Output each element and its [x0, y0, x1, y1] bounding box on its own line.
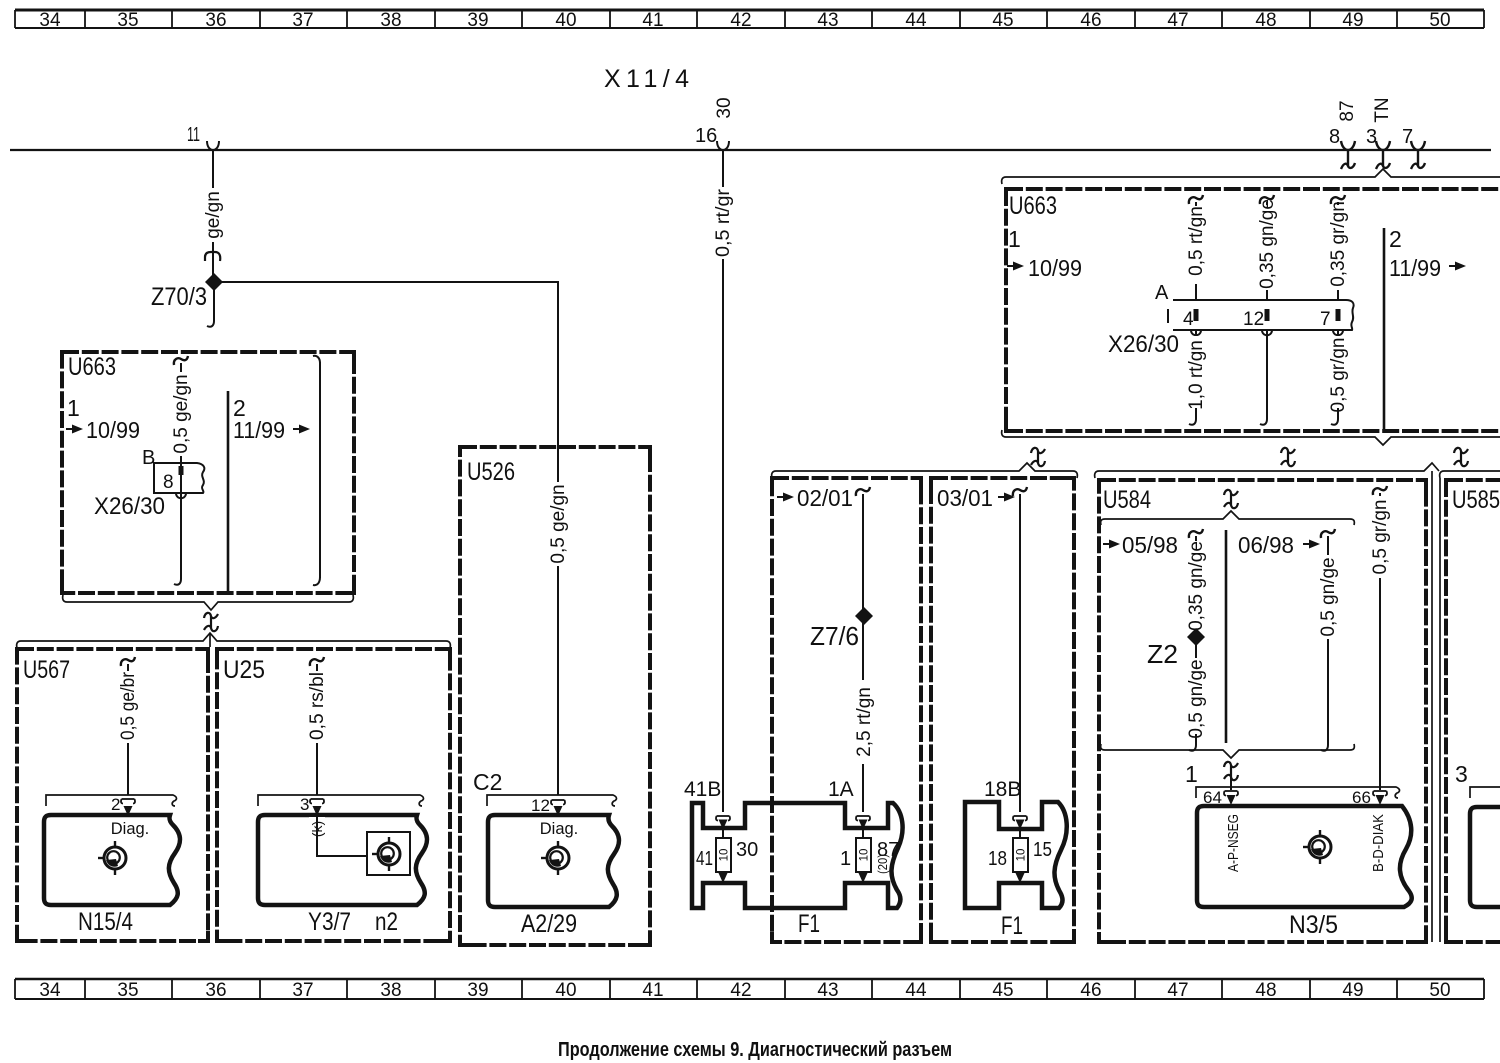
svg-text:11: 11	[187, 124, 200, 146]
svg-text:43: 43	[817, 980, 838, 1001]
svg-text:48: 48	[1255, 10, 1276, 31]
svg-text:B-D-DIAK: B-D-DIAK	[1370, 814, 1387, 872]
svg-text:1,0 rt/gn: 1,0 rt/gn	[1186, 340, 1207, 410]
svg-text:U25: U25	[223, 656, 265, 684]
svg-text:42: 42	[730, 10, 751, 31]
svg-text:47: 47	[1167, 10, 1188, 31]
svg-text:U584: U584	[1103, 486, 1151, 514]
svg-text:37: 37	[292, 980, 313, 1001]
svg-text:36: 36	[205, 980, 226, 1001]
svg-text:10/99: 10/99	[1028, 255, 1082, 281]
svg-text:0,5 ge/gn: 0,5 ge/gn	[171, 374, 192, 453]
svg-text:10/99: 10/99	[86, 417, 140, 443]
svg-text:05/98: 05/98	[1122, 532, 1178, 558]
svg-text:1A: 1A	[828, 778, 854, 801]
svg-text:X26/30: X26/30	[1108, 331, 1179, 358]
svg-text:7: 7	[1320, 309, 1331, 330]
svg-text:N3/5: N3/5	[1289, 911, 1338, 939]
svg-text:0,5 gn/ge: 0,5 gn/ge	[1186, 659, 1207, 738]
svg-text:11/99: 11/99	[233, 417, 285, 443]
svg-text:30: 30	[714, 97, 735, 118]
svg-text:2,5 rt/gn: 2,5 rt/gn	[854, 687, 875, 757]
svg-text:45: 45	[992, 10, 1013, 31]
svg-text:N15/4: N15/4	[78, 908, 133, 936]
svg-text:F1: F1	[798, 910, 820, 938]
svg-text:3: 3	[300, 795, 309, 814]
svg-text:39: 39	[467, 980, 488, 1001]
svg-text:0,5 ge/gn: 0,5 ge/gn	[548, 484, 569, 563]
svg-text:Y3/7: Y3/7	[308, 908, 351, 936]
svg-text:U663: U663	[68, 353, 116, 381]
svg-text:Продолжение схемы 9. Диагно: Продолжение схемы 9. Диагностический раз…	[558, 1038, 952, 1061]
svg-text:11/99: 11/99	[1389, 255, 1441, 281]
svg-text:40: 40	[555, 10, 576, 31]
svg-text:03/01: 03/01	[937, 485, 993, 511]
svg-text:TN: TN	[1372, 97, 1393, 122]
svg-text:A-P-NSEG: A-P-NSEG	[1225, 814, 1242, 872]
svg-text:ge/gn: ge/gn	[203, 191, 224, 239]
svg-text:38: 38	[380, 980, 401, 1001]
svg-text:0,35 gn/ge: 0,35 gn/ge	[1257, 199, 1278, 289]
svg-text:F1: F1	[1001, 912, 1023, 940]
svg-text:0,5 gn/ge: 0,5 gn/ge	[1318, 557, 1339, 636]
svg-text:(20): (20)	[876, 854, 890, 874]
svg-text:48: 48	[1255, 980, 1276, 1001]
svg-text:1: 1	[67, 395, 80, 421]
svg-text:41B: 41B	[684, 778, 721, 801]
svg-text:X11/4: X11/4	[604, 65, 689, 93]
svg-text:A2/29: A2/29	[521, 910, 577, 938]
svg-text:10: 10	[1016, 849, 1028, 862]
svg-text:47: 47	[1167, 980, 1188, 1001]
svg-text:12: 12	[531, 796, 550, 815]
svg-text:06/98: 06/98	[1238, 532, 1294, 558]
svg-text:10: 10	[859, 849, 871, 862]
svg-text:Diag.: Diag.	[111, 820, 150, 838]
svg-text:15: 15	[1033, 839, 1052, 861]
svg-text:41: 41	[696, 848, 713, 870]
svg-text:30: 30	[736, 839, 758, 861]
svg-text:34: 34	[39, 10, 61, 31]
svg-text:18: 18	[988, 848, 1007, 870]
svg-text:49: 49	[1342, 10, 1363, 31]
svg-text:44: 44	[905, 10, 927, 31]
svg-text:87: 87	[1337, 100, 1358, 121]
svg-text:4: 4	[1183, 309, 1194, 330]
svg-text:3: 3	[1366, 126, 1377, 148]
svg-text:35: 35	[117, 980, 138, 1001]
svg-text:18B: 18B	[984, 778, 1021, 801]
svg-text:0,5 rt/gr: 0,5 rt/gr	[713, 188, 734, 257]
svg-text:42: 42	[730, 980, 751, 1001]
svg-text:1: 1	[1008, 226, 1021, 252]
svg-text:12: 12	[1243, 309, 1264, 330]
svg-text:0,35 gr/gn: 0,35 gr/gn	[1328, 201, 1349, 287]
svg-text:0,5 rs/bl: 0,5 rs/bl	[307, 672, 328, 740]
svg-text:36: 36	[205, 10, 226, 31]
svg-text:35: 35	[117, 10, 138, 31]
svg-text:50: 50	[1429, 10, 1450, 31]
svg-text:50: 50	[1429, 980, 1450, 1001]
svg-text:n2: n2	[375, 908, 398, 936]
svg-text:44: 44	[905, 980, 927, 1001]
svg-text:8: 8	[1329, 126, 1340, 148]
svg-text:37: 37	[292, 10, 313, 31]
svg-text:0,5 gr/gn: 0,5 gr/gn	[1328, 338, 1349, 413]
svg-text:A: A	[1155, 282, 1169, 304]
svg-text:10: 10	[719, 849, 731, 862]
svg-text:2: 2	[111, 795, 120, 814]
svg-text:8: 8	[163, 472, 174, 493]
svg-text:1: 1	[840, 848, 851, 870]
svg-text:0,5 rt/gn: 0,5 rt/gn	[1186, 206, 1207, 276]
svg-text:0,35 gn/ge: 0,35 gn/ge	[1186, 541, 1207, 631]
svg-text:1: 1	[1185, 761, 1198, 787]
svg-text:3: 3	[1455, 761, 1468, 787]
svg-text:U567: U567	[23, 656, 70, 684]
svg-text:46: 46	[1080, 980, 1101, 1001]
svg-text:38: 38	[380, 10, 401, 31]
svg-text:U585: U585	[1452, 486, 1500, 514]
svg-text:U526: U526	[467, 458, 515, 486]
svg-text:39: 39	[467, 10, 488, 31]
svg-text:Z7/6: Z7/6	[810, 621, 859, 651]
svg-text:49: 49	[1342, 980, 1363, 1001]
svg-text:16: 16	[695, 125, 717, 147]
svg-text:46: 46	[1080, 10, 1101, 31]
svg-text:43: 43	[817, 10, 838, 31]
svg-text:40: 40	[555, 980, 576, 1001]
svg-text:Z2: Z2	[1147, 639, 1178, 669]
svg-text:X26/30: X26/30	[94, 493, 165, 520]
svg-text:0,5 ge/br: 0,5 ge/br	[118, 671, 139, 740]
svg-text:Z70/3: Z70/3	[151, 283, 207, 311]
svg-text:2: 2	[1389, 226, 1402, 252]
svg-text:0,5 gr/gn: 0,5 gr/gn	[1370, 500, 1391, 575]
svg-text:45: 45	[992, 980, 1013, 1001]
svg-text:34: 34	[39, 980, 61, 1001]
svg-text:41: 41	[642, 10, 663, 31]
svg-text:Diag.: Diag.	[540, 820, 579, 838]
svg-text:U663: U663	[1009, 192, 1057, 220]
svg-text:C2: C2	[473, 769, 502, 795]
svg-text:41: 41	[642, 980, 663, 1001]
svg-text:02/01: 02/01	[797, 485, 853, 511]
